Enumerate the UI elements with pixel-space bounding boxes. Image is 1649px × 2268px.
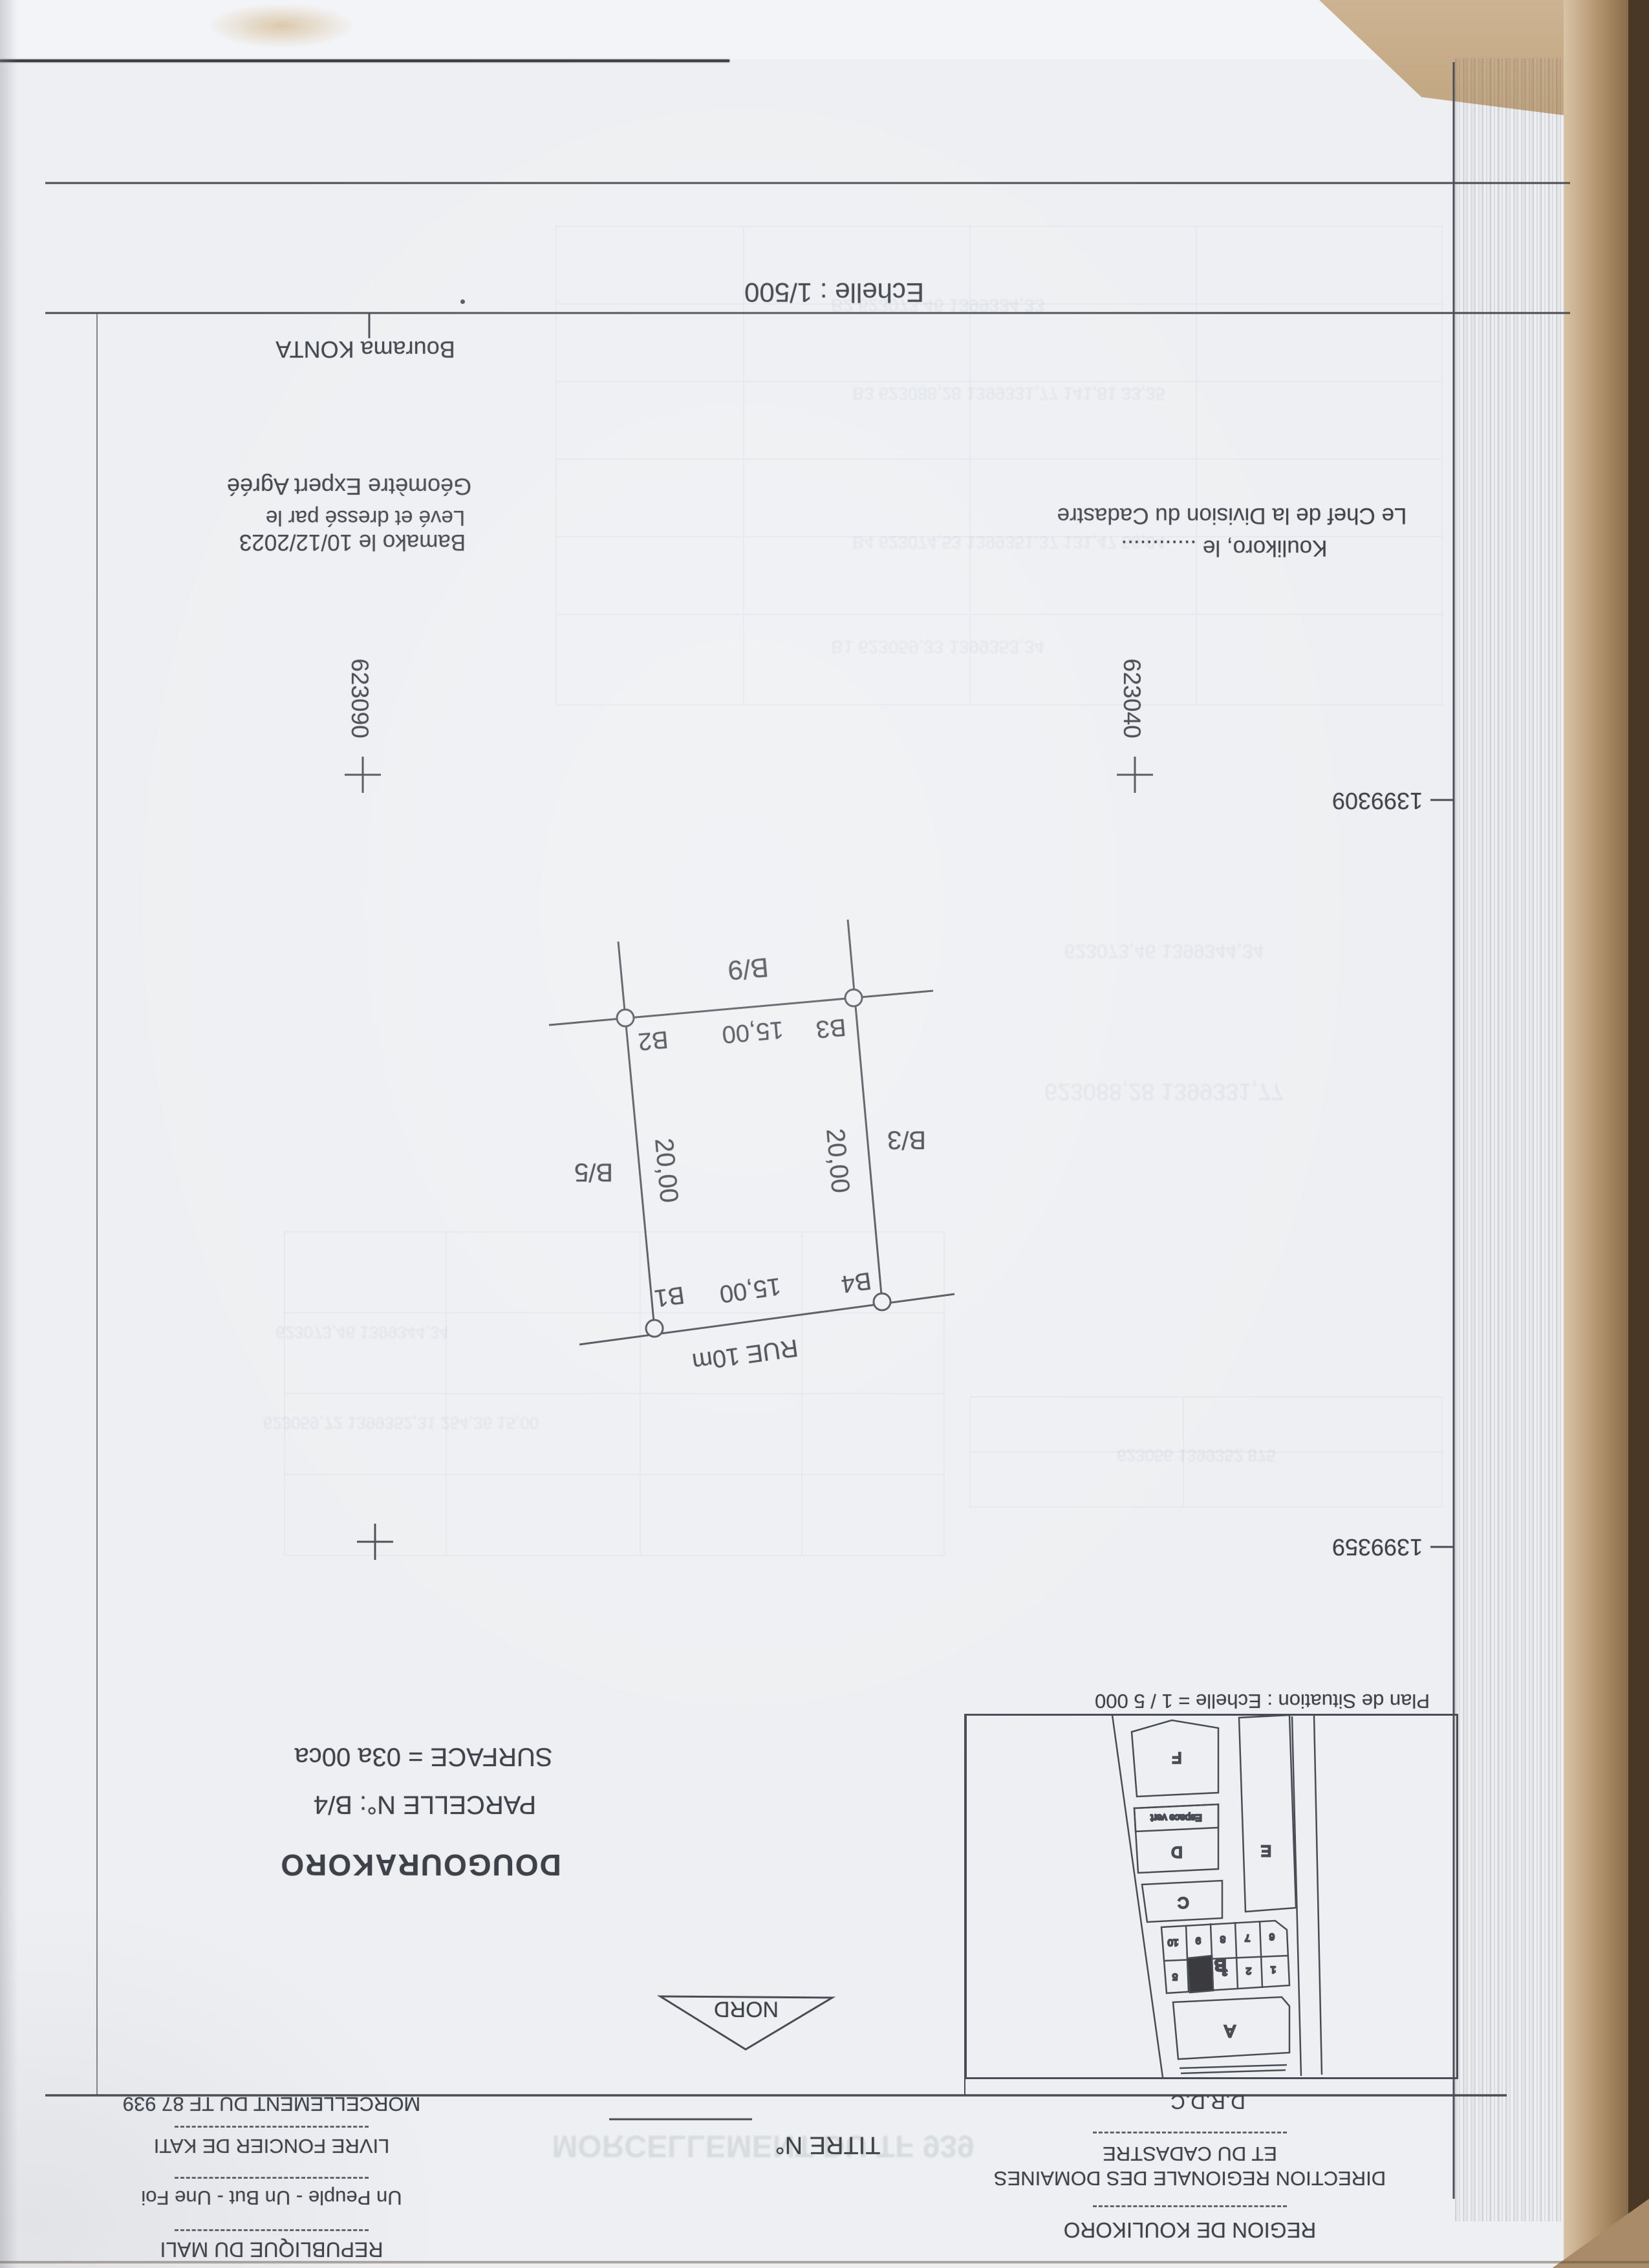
inset-lot-number: 10 [1168, 1937, 1179, 1948]
ghost-text: B4 623074,53 1399351,37 131,47 56,04 [852, 532, 1165, 552]
corner-point-b3 [845, 989, 862, 1006]
direction-label: DIRECTION REGIONALE DES DOMAINES [994, 2166, 1386, 2190]
inset-label-d: D [1171, 1843, 1182, 1861]
grid-y-label-top: 1399309 [1332, 787, 1423, 814]
parcel-number-label: PARCELLE N°: B/4 [314, 1790, 536, 1819]
ghost-text: B3 623088,28 1399331,77 141,81 33,35 [852, 383, 1165, 404]
grid-x-label-left: 623090 [346, 658, 373, 738]
coordinate-cross-3 [357, 1524, 393, 1560]
coordinate-cross-2 [1117, 757, 1153, 793]
ghost-text: 623073,46 1399344,34 [1064, 940, 1264, 962]
inset-label-f: F [1172, 1749, 1182, 1766]
surveyor-name: Bourama KONTA [275, 336, 455, 363]
koulikoro-date-line: Koulikoro, le ............ [1121, 535, 1327, 561]
dashed-divider [1093, 2132, 1287, 2133]
dimension-top: 15,00 [721, 1015, 784, 1048]
ghost-text: MORCELLEMENT DU TF 939 [552, 2128, 974, 2164]
inset-lot-number: 3 [1222, 1967, 1227, 1978]
inset-lot-number: 2 [1246, 1965, 1251, 1976]
livre-foncier-label: LIVRE FONCIER DE KATI [154, 2134, 390, 2157]
grid-y-label-bottom: 1399359 [1332, 1533, 1423, 1561]
leve-line: Levé et dressé par le [266, 506, 465, 530]
et-du-cadastre-label: ET DU CADASTRE [1103, 2142, 1277, 2165]
inset-label-a: A [1224, 2022, 1236, 2041]
grid-x-label-right: 623040 [1118, 658, 1145, 738]
block-label-north: B/9 [727, 951, 770, 986]
highlighted-lot-4 [1187, 1956, 1213, 1993]
block-label-east: B/3 [887, 1125, 926, 1154]
morcellement-label: MORCELLEMENT DU TF 87 939 [123, 2092, 421, 2115]
inset-street-west [1112, 1715, 1163, 2077]
surveyor-title: Géomètre Expert Agréé [227, 473, 471, 500]
inset-lot-E [1239, 1715, 1296, 1912]
ghost-text: 623056 1399352 875 [1117, 1445, 1276, 1465]
dashed-divider [175, 2177, 369, 2179]
ghost-text: 623088,28 1399331,77 [1044, 1078, 1284, 1105]
ghost-text: 623073,46 1399344,34 [275, 1323, 449, 1343]
dashed-divider [175, 2126, 369, 2128]
inset-lot-number: 7 [1245, 1932, 1250, 1943]
inset-lot-number: 9 [1196, 1935, 1201, 1946]
titre-label: TITRE N° [775, 2131, 881, 2159]
scale-label: Echelle : 1/500 [744, 277, 924, 308]
parcel-edge-west [618, 942, 654, 1328]
inset-road-line-2 [1314, 1715, 1322, 2075]
corner-label-b2: B2 [637, 1025, 669, 1055]
corner-point-b4 [874, 1293, 890, 1310]
dashed-divider [1093, 2205, 1287, 2207]
region-label: REGION DE KOULIKORO [1064, 2218, 1317, 2242]
ghost-text: B1 623059,33 1399353,34 [831, 636, 1044, 657]
cadastre-chief-line: Le Chef de la Division du Cadastre [1057, 502, 1407, 528]
inset-label-espace-vert: Espace vert [1150, 1812, 1202, 1823]
corner-label-b4: B4 [839, 1266, 873, 1297]
corner-point-b2 [617, 1010, 634, 1026]
corner-label-b1: B1 [652, 1280, 686, 1312]
locality-label: DOUGOURAKORO [279, 1848, 561, 1883]
situation-inset: F Espace vert D C E A B 10 9 8 7 6 5 3 2… [966, 1715, 1458, 2079]
corner-label-b3: B3 [815, 1013, 847, 1043]
inset-lot-number: 6 [1269, 1931, 1275, 1942]
dimension-right: 20,00 [820, 1127, 855, 1194]
inset-road-mark [1180, 2065, 1287, 2073]
block-label-west: B/5 [574, 1158, 613, 1187]
inset-label-e: E [1261, 1842, 1271, 1859]
surface-label: SURFACE = 03a 00ca [294, 1742, 552, 1771]
north-label: NORD [714, 1996, 779, 2022]
dimension-left: 20,00 [649, 1137, 684, 1204]
ghost-text: 623059,72 1399352,31 254,36 15,00 [263, 1413, 539, 1433]
inset-lot-number: 5 [1172, 1971, 1178, 1982]
devise-label: Un Peuple - Un But - Une Foi [141, 2186, 402, 2209]
bamako-date-line: Bamako le 10/12/2023 [239, 529, 466, 555]
inset-lot-number: 8 [1220, 1934, 1225, 1945]
situation-title: Plan de Situation : Echelle = 1 / 5 000 [1095, 1689, 1430, 1712]
coordinate-cross-1 [345, 757, 381, 793]
parcel-edge-east [848, 920, 882, 1302]
inset-label-c: C [1178, 1894, 1189, 1911]
dashed-divider [175, 2229, 369, 2231]
inset-road-line-1 [1292, 1716, 1301, 2076]
corner-point-b1 [646, 1320, 663, 1337]
inset-frame [966, 1715, 1458, 2079]
scanned-cadastral-plan: F Espace vert D C E A B 10 9 8 7 6 5 3 2… [0, 0, 1649, 2268]
republique-label: REPUBLIQUE DU MALI [160, 2238, 383, 2262]
inset-lot-number: 1 [1271, 1964, 1276, 1975]
situation-caption: D.R.D.C [1170, 2090, 1245, 2113]
